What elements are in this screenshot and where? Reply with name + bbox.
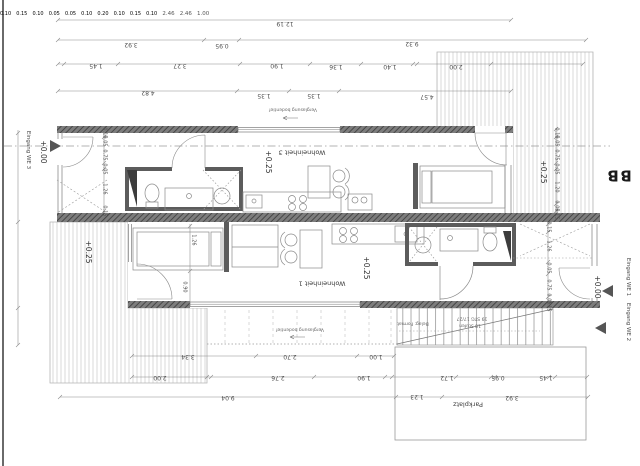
dim-label: 0.15	[546, 221, 551, 232]
dim-label: 1.45	[539, 374, 552, 380]
dim-label: 1.26	[546, 240, 551, 251]
glazing-note: Verglasung bodentief	[276, 326, 324, 331]
entrance-label-we3: Eingang WE 3	[24, 131, 30, 169]
dim-label: 1.35	[307, 92, 320, 98]
level-label: +0.25	[539, 161, 547, 184]
dim-label: 1.26	[191, 234, 196, 245]
dim-label: 1.26	[102, 183, 107, 194]
dim-label: 0.15	[554, 208, 559, 219]
stair-note: 18 Stufen	[459, 322, 481, 327]
level-label: +0.25	[362, 257, 370, 280]
dim-label: 0.05	[102, 135, 107, 146]
dim-label: 9.04	[221, 394, 234, 400]
dim-label: 1.23	[410, 393, 423, 399]
dim-label: 0.75	[102, 149, 107, 160]
floor-plan-drawing	[0, 0, 640, 466]
dim-label: 3.92	[505, 394, 518, 400]
dim-label: 9.32	[405, 40, 418, 46]
dim-label: 0.05	[546, 262, 551, 273]
dim-label: 12.19	[276, 20, 293, 26]
section-marker-b: B	[607, 168, 618, 183]
dim-label: 1.40	[383, 63, 396, 69]
dim-label: 3.27	[173, 62, 186, 68]
entrance-arrow-we1	[595, 322, 606, 334]
dim-label: 0.95	[215, 42, 228, 48]
section-marker-b: B	[620, 168, 631, 183]
dim-label: 1.45	[89, 62, 102, 68]
entrance-label-we2: Eingang WE 2	[624, 303, 630, 341]
wardrobe	[224, 222, 229, 272]
dim-label: 0.75	[554, 149, 559, 160]
level-label: +0.00	[593, 276, 601, 299]
dim-label: 0.15	[546, 300, 551, 311]
dim-label: 2.70	[283, 353, 296, 359]
wardrobe	[413, 163, 418, 209]
dim-label: 1.20	[554, 181, 559, 192]
entrance-arrow-we2	[602, 285, 613, 297]
dim-label: 0.95	[491, 374, 504, 380]
entrance-label-we1: Eingang WE 1	[624, 258, 630, 296]
dim-label: 4.57	[420, 93, 433, 99]
dim-label: 0.05	[554, 163, 559, 174]
dim-label: 1.90	[270, 62, 283, 68]
dim-label: 1.36	[329, 63, 342, 69]
level-label: +0.25	[264, 151, 272, 174]
glazing-note: Verglasung bodentief	[269, 106, 317, 111]
dim-label: 1.00	[369, 353, 382, 359]
dim-label: 1.90	[357, 374, 370, 380]
room-label-unit1: Wohneinheit 1	[299, 280, 346, 287]
level-label: +0.25	[84, 241, 92, 264]
dim-label: 0.05	[554, 135, 559, 146]
dim-label: 0.90	[182, 281, 187, 292]
dim-label: 2.76	[271, 374, 284, 380]
dim-label: 0.75	[546, 279, 551, 290]
dim-label: 0.05	[102, 163, 107, 174]
dim-label: 3.92	[124, 41, 137, 47]
parkplatz-label: Parkplatz	[453, 401, 483, 408]
dim-label: 2.00	[153, 374, 166, 380]
dim-label: 3.34	[181, 353, 194, 359]
flooring-note: Belag: Format	[397, 320, 429, 325]
stair-note: 19 STG 17/27	[457, 315, 488, 320]
dim-label: 2.00	[449, 63, 462, 69]
floor-plan-sheet: 12.19 3.92 0.95 9.32 0.10 0.15 1.45 3.27…	[0, 0, 640, 466]
room-label-unit3: Wohneinheit 3	[279, 149, 326, 156]
dim-label: 1.72	[440, 374, 453, 380]
dim-label: 4.82	[141, 89, 154, 95]
dim-label: 0.15	[102, 205, 107, 216]
dim-label: 1.35	[257, 92, 270, 98]
level-label: +0.00	[39, 141, 47, 164]
